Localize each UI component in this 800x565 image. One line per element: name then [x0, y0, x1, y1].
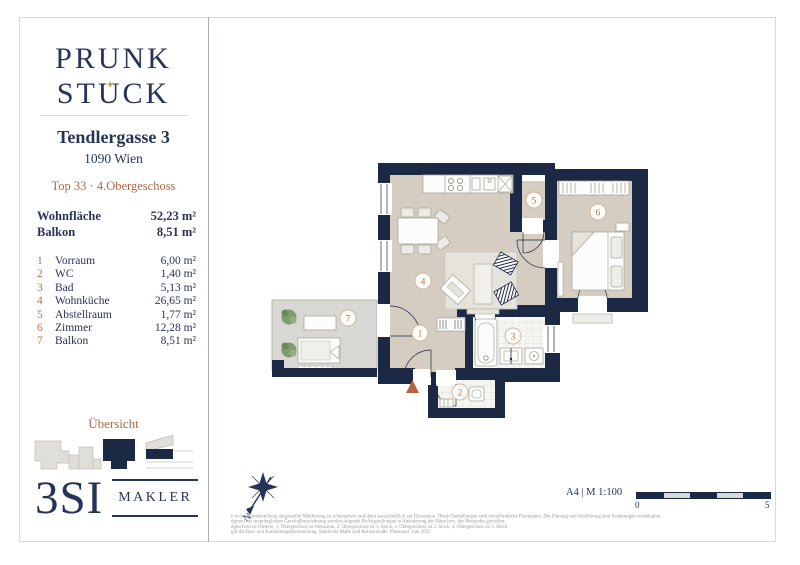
kitchen-counter	[423, 175, 513, 193]
scale-bar	[637, 493, 770, 498]
sidebar-divider	[208, 17, 209, 542]
plant-icon	[282, 310, 297, 325]
disclaimer-text: e in der Plandarstellung dargestellte Mö…	[231, 514, 774, 535]
format-scale-label: A4 | M 1:100	[566, 487, 622, 498]
toilet-icon	[469, 387, 484, 401]
room-badge: 6	[590, 204, 606, 220]
floor-plan: 1 2 3 4 5 6 7	[260, 140, 690, 430]
bed-icon	[572, 232, 624, 290]
room-row: 1Vorraum6,00 m²	[37, 255, 196, 268]
wc-sink-icon	[440, 399, 453, 407]
room-row: 3Bad5,13 m²	[37, 282, 196, 295]
agency-name: 3SI	[35, 473, 103, 523]
nightstand-icon	[616, 223, 629, 231]
svg-text:6: 6	[596, 208, 601, 218]
dining-table	[398, 218, 438, 244]
area-summary: Wohnfläche52,23 m² Balkon8,51 m²	[37, 208, 196, 240]
unit-line: Top 33 · 4.Obergeschoss	[19, 179, 208, 194]
balcony-table-icon	[304, 316, 336, 330]
room-badge: 2	[452, 384, 468, 400]
disclaimer-line: gilt die Bau- und Ausstattungsbeschreibu…	[231, 530, 774, 535]
lounge-icon	[298, 338, 340, 363]
scale-start-label: 0	[635, 500, 640, 510]
room-row: 2WC1,40 m²	[37, 268, 196, 281]
svg-text:7: 7	[346, 314, 351, 324]
building-floor-icon	[146, 435, 193, 468]
svg-text:1: 1	[418, 329, 423, 339]
agency-logo: 3SI MAKLER	[35, 473, 210, 523]
room-row: 5Abstellraum1,77 m²	[37, 309, 196, 322]
brand-logo: PRUNK ST✦UCK	[19, 41, 208, 111]
room-row: 4Wohnküche26,65 m²	[37, 295, 196, 308]
svg-text:4: 4	[421, 277, 426, 287]
logo-divider	[40, 115, 188, 116]
hall-cabinet	[437, 318, 465, 331]
washing-machine-icon	[525, 348, 543, 364]
room-badge: 5	[526, 192, 542, 208]
svg-text:3: 3	[511, 332, 516, 342]
star-icon: ✦	[106, 68, 114, 103]
address-title: Tendlergasse 3	[19, 127, 208, 148]
washbasin-icon	[500, 348, 522, 364]
sofa-group	[440, 252, 519, 314]
highlighted-building-footprint	[103, 439, 135, 469]
room-list: 1Vorraum6,00 m² 2WC1,40 m² 3Bad5,13 m² 4…	[37, 255, 196, 349]
svg-text:2: 2	[458, 388, 463, 398]
svg-text:5: 5	[532, 196, 537, 206]
sidebar: PRUNK ST✦UCK Tendlergasse 3 1090 Wien To…	[19, 17, 208, 542]
plant-icon	[282, 343, 297, 358]
scale-end-label: 5	[765, 500, 770, 510]
summary-row: Balkon8,51 m²	[37, 224, 196, 240]
room-badge: 1	[412, 325, 428, 341]
summary-row: Wohnfläche52,23 m²	[37, 208, 196, 224]
room-badge: 4	[415, 273, 431, 289]
room-row: 7Balkon8,51 m²	[37, 335, 196, 348]
room-badge: 7	[340, 310, 356, 326]
radiator-icon	[558, 262, 563, 296]
bathtub-icon	[475, 319, 497, 366]
brand-line2: ST✦UCK	[19, 76, 208, 111]
room-row: 6Zimmer12,28 m²	[37, 322, 196, 335]
wardrobe-icon	[559, 181, 629, 195]
city-line: 1090 Wien	[19, 151, 208, 167]
agency-type: MAKLER	[112, 479, 198, 517]
overview-label: Übersicht	[19, 416, 208, 432]
room-badge: 3	[505, 328, 521, 344]
